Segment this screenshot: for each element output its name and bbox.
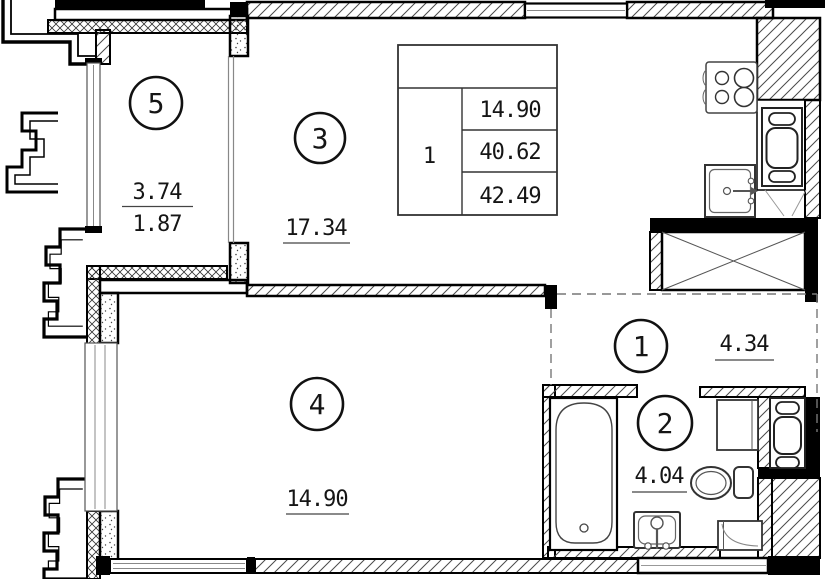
room-number: 5 xyxy=(148,87,165,120)
vent-shaft-icon xyxy=(662,232,805,290)
room-area: 14.90 xyxy=(286,487,347,512)
room-area: 4.34 xyxy=(720,332,770,357)
bathroom-wall-top xyxy=(543,385,637,397)
shaft-wall-left xyxy=(650,232,662,290)
bathtub-icon xyxy=(550,398,617,550)
pier xyxy=(230,16,248,56)
refrigerator-icon xyxy=(762,108,802,186)
room-area: 4.04 xyxy=(635,464,685,489)
corner-cabinet-icon xyxy=(718,521,762,550)
room-area-denominator: 1.87 xyxy=(133,212,182,237)
balcony-wall-bottom xyxy=(87,266,227,279)
table-value-floor: 40.62 xyxy=(479,140,540,165)
room-area: 17.34 xyxy=(285,216,347,241)
toilet-icon xyxy=(691,467,753,499)
floor-plan-drawing: 5 3.74 1.87 3 17.34 4 14.90 1 4.34 2 4.0… xyxy=(0,0,825,579)
washing-machine-icon xyxy=(717,400,758,450)
kitchen-sink-icon xyxy=(705,165,758,217)
window-room4-bottom xyxy=(110,559,247,573)
parapet-step xyxy=(765,0,825,8)
room-area-numerator: 3.74 xyxy=(133,180,183,205)
exterior-wall-bottom xyxy=(255,559,638,573)
exterior-wall-bottom-right xyxy=(772,478,820,558)
table-value-total: 42.49 xyxy=(479,184,540,209)
exterior-wall-top xyxy=(247,2,525,18)
exterior-wall-right xyxy=(805,100,820,218)
table-value-living: 14.90 xyxy=(479,98,540,123)
slab-edge xyxy=(55,9,247,20)
water-heater-icon xyxy=(770,398,805,468)
bath-sink-icon xyxy=(634,512,680,549)
room-number: 2 xyxy=(657,407,674,440)
room-number: 3 xyxy=(312,122,329,155)
bathroom-wall-top-right xyxy=(700,387,805,397)
exterior-wall-top-right xyxy=(627,2,773,18)
area-table: 1 14.90 40.62 42.49 xyxy=(398,45,557,215)
room-number: 4 xyxy=(309,388,326,421)
shaft-wall-top xyxy=(650,218,818,232)
balcony-wall-top xyxy=(48,20,247,33)
shaft-wall-right xyxy=(805,218,818,302)
slab-edge-dark xyxy=(55,0,205,9)
pier xyxy=(230,243,248,283)
exterior-wall-right-upper xyxy=(757,18,820,100)
partition-wall xyxy=(247,285,545,296)
unit-number: 1 xyxy=(423,144,435,169)
room-number: 1 xyxy=(633,330,650,363)
floor-plan-page: 5 3.74 1.87 3 17.34 4 14.90 1 4.34 2 4.0… xyxy=(0,0,825,579)
window-room4-left xyxy=(85,343,117,511)
slab-edge-mid xyxy=(100,280,247,293)
stove-icon xyxy=(703,62,757,113)
pier xyxy=(100,293,118,343)
pier xyxy=(100,511,118,561)
